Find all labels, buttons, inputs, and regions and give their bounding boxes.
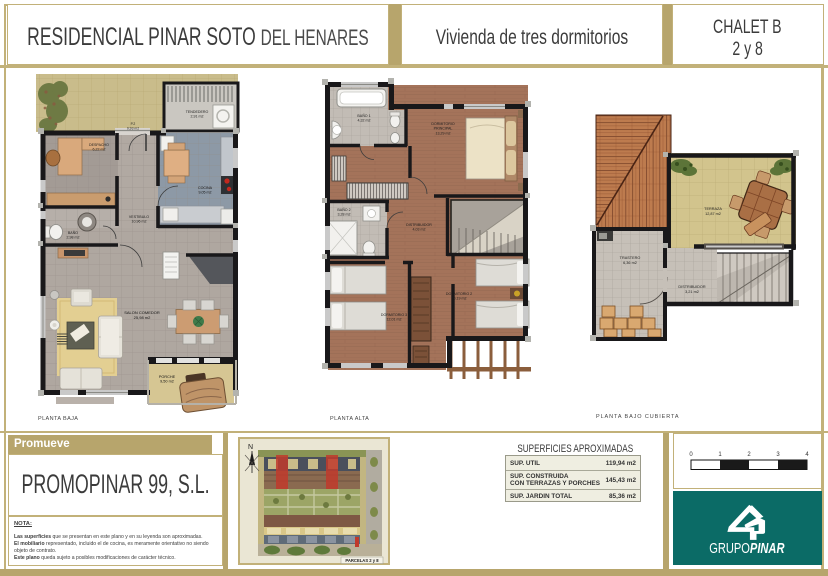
svg-text:BAÑO: BAÑO xyxy=(68,230,78,235)
svg-text:PRINCIPAL: PRINCIPAL xyxy=(434,127,453,131)
svg-text:4,32 m2: 4,32 m2 xyxy=(358,119,371,123)
svg-text:6,22 m2: 6,22 m2 xyxy=(93,148,106,152)
svg-text:TERRAZA: TERRAZA xyxy=(704,207,722,211)
svg-text:3,28 m2: 3,28 m2 xyxy=(338,213,351,217)
svg-text:TENDEDERO: TENDEDERO xyxy=(186,110,209,114)
svg-text:PORCHE: PORCHE xyxy=(159,375,176,379)
svg-text:10,96 m2: 10,96 m2 xyxy=(132,220,147,224)
svg-text:13,29 m2: 13,29 m2 xyxy=(436,132,451,136)
svg-text:PARCELAS 2 y 8: PARCELAS 2 y 8 xyxy=(345,558,379,563)
svg-text:4,03 m2: 4,03 m2 xyxy=(413,228,426,232)
svg-text:2,91 m2: 2,91 m2 xyxy=(191,115,204,119)
svg-text:TRASTERO: TRASTERO xyxy=(620,256,641,260)
svg-text:4: 4 xyxy=(805,452,809,458)
svg-text:DESPACHO: DESPACHO xyxy=(89,143,109,147)
svg-text:6,36 m2: 6,36 m2 xyxy=(623,261,637,265)
svg-text:DORMITORIO 2: DORMITORIO 2 xyxy=(446,292,472,296)
svg-text:25,98 m2: 25,98 m2 xyxy=(134,315,151,320)
svg-text:N: N xyxy=(248,444,253,451)
svg-text:9,05 m2: 9,05 m2 xyxy=(199,191,212,195)
svg-text:1: 1 xyxy=(718,452,722,458)
svg-text:12,01 m2: 12,01 m2 xyxy=(387,318,402,322)
svg-text:3,21 m2: 3,21 m2 xyxy=(685,290,699,294)
svg-text:3: 3 xyxy=(776,452,780,458)
svg-text:DISTRIBUIDOR: DISTRIBUIDOR xyxy=(678,285,705,289)
svg-text:0,93 m2: 0,93 m2 xyxy=(127,126,139,130)
svg-text:COCINA: COCINA xyxy=(198,186,213,190)
svg-text:BAÑO 2: BAÑO 2 xyxy=(337,207,350,212)
svg-text:12,87 m2: 12,87 m2 xyxy=(705,212,721,216)
svg-text:DORMITORIO 3: DORMITORIO 3 xyxy=(381,313,407,317)
svg-text:VESTIBULO: VESTIBULO xyxy=(129,215,149,219)
svg-text:9,50 m2: 9,50 m2 xyxy=(160,380,174,384)
svg-text:2,98 m2: 2,98 m2 xyxy=(67,236,80,240)
svg-text:DORMITORIO: DORMITORIO xyxy=(431,122,454,126)
svg-text:DISTRIBUIDOR: DISTRIBUIDOR xyxy=(406,223,432,227)
svg-text:2: 2 xyxy=(747,452,751,458)
svg-text:0: 0 xyxy=(689,452,693,458)
svg-text:BAÑO 1: BAÑO 1 xyxy=(357,113,370,118)
